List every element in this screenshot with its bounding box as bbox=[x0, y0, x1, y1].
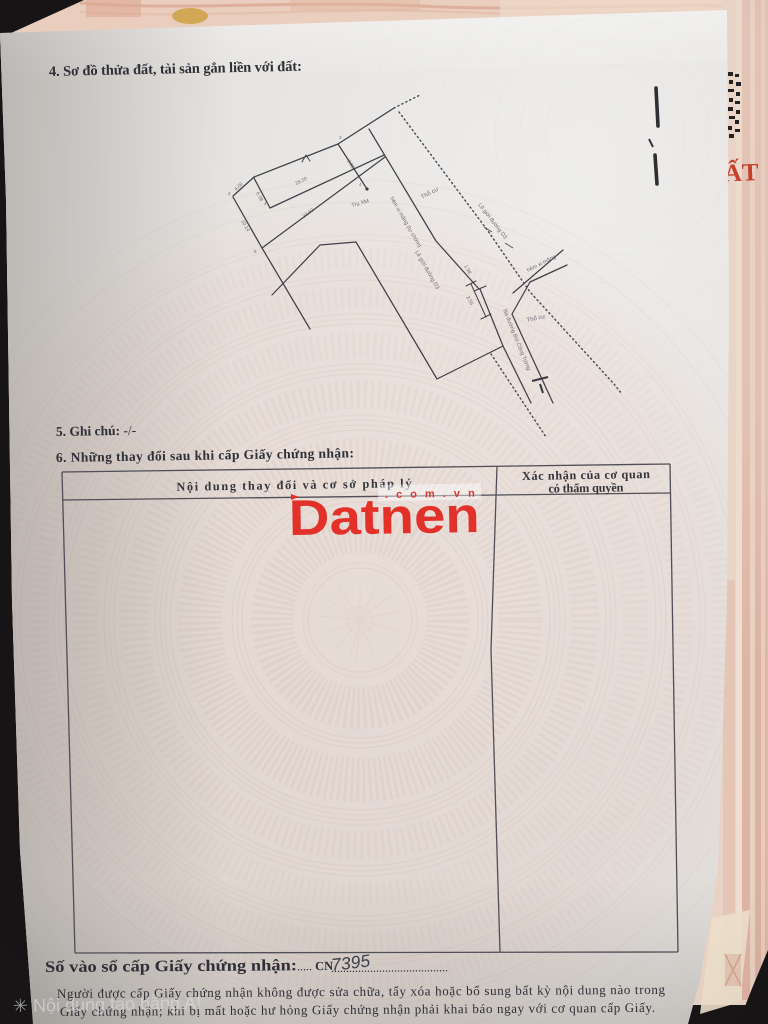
svg-text:✳ Nội dung tạo bằng AI: ✳ Nội dung tạo bằng AI bbox=[13, 992, 202, 1016]
